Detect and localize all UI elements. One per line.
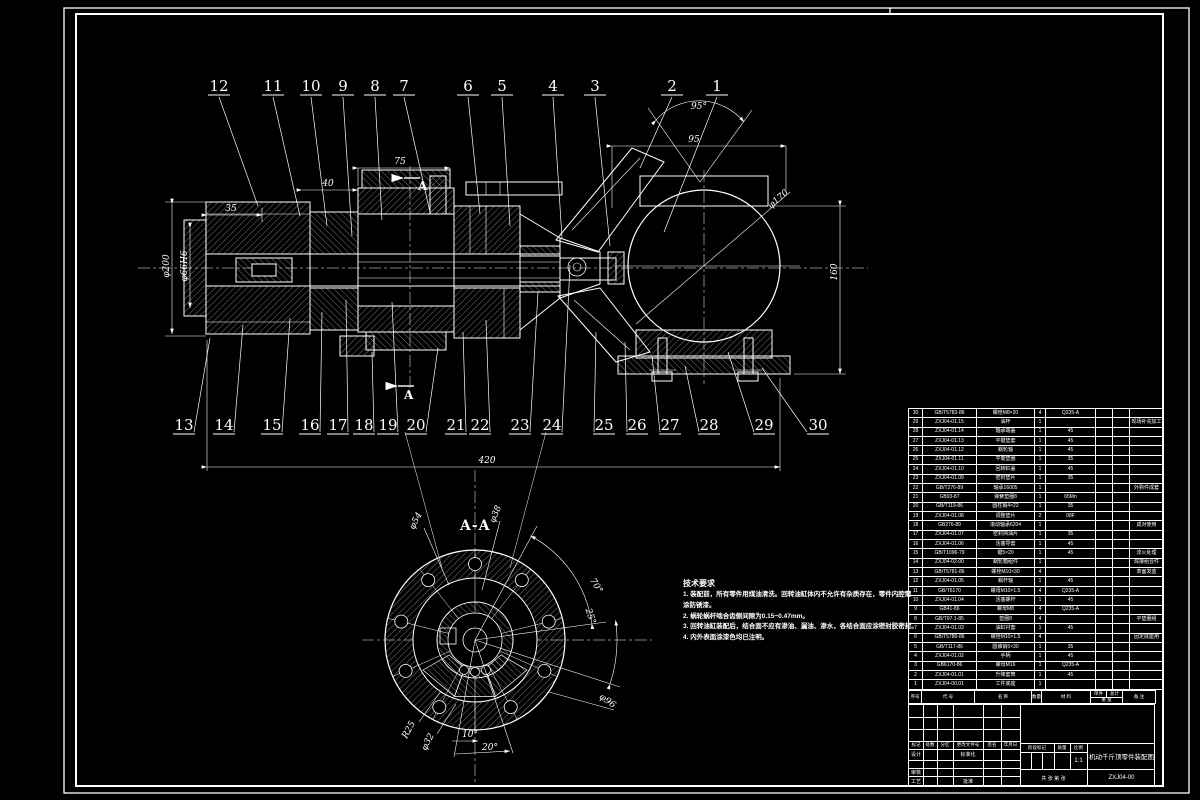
bom-cell: 轴承端盖 xyxy=(977,427,1035,436)
dim-d170: φ170 xyxy=(767,188,791,211)
bom-cell: 35 xyxy=(1046,642,1096,651)
bom-cell: 28 xyxy=(909,427,923,436)
bom-cell: 45 xyxy=(1046,437,1096,446)
bom-cell xyxy=(1130,596,1164,605)
bom-cell xyxy=(1130,577,1164,586)
bom-header: 序号 代 号 名 称 数量 材 料 单件 总计 备 注 重 量 xyxy=(908,690,1155,704)
bom-cell xyxy=(1096,568,1113,577)
notes-line: 4. 内外表面涂漆色均已注明。 xyxy=(683,633,915,644)
dim-70deg: 70° xyxy=(587,577,604,596)
bom-cell: GB/T5783-86 xyxy=(923,409,977,418)
dim-35: 35 xyxy=(225,204,237,214)
bom-cell xyxy=(1096,493,1113,502)
bom-cell: 密封挡油片 xyxy=(977,530,1035,539)
bom-cell xyxy=(1096,661,1113,670)
callout-16: 16 xyxy=(300,416,319,434)
bom-cell: 20 xyxy=(909,502,923,511)
callout-1: 1 xyxy=(712,77,722,95)
bom-cell xyxy=(1130,652,1164,661)
bom-cell xyxy=(1113,530,1130,539)
bom-cell xyxy=(1130,605,1164,614)
bom-cell: 15 xyxy=(909,549,923,558)
bom-cell xyxy=(1130,455,1164,464)
bom-cell: 升降套筒 xyxy=(977,671,1035,680)
title-block: 标记 处数 分区 更改文件号 签名 年月日 设计 标准化 审核 工艺 批准 阶段… xyxy=(908,704,1155,786)
tb-grid-line xyxy=(1020,705,1021,787)
bom-cell: 1 xyxy=(1035,530,1046,539)
bom-cell xyxy=(1096,465,1113,474)
bom-header-name: 名 称 xyxy=(975,691,1032,704)
bom-cell: Q235-A xyxy=(1046,661,1096,670)
bom-cell xyxy=(1096,549,1113,558)
bom-cell: 调整垫片 xyxy=(977,511,1035,520)
bom-cell: 1 xyxy=(1035,596,1046,605)
technical-notes: 技术要求 1. 装配前，所有零件用煤油清洗。回转油缸体内不允许有杂质存在，零件内… xyxy=(683,578,915,644)
bom-cell: ZXJ04-01.13 xyxy=(923,437,977,446)
bom-cell xyxy=(1113,624,1130,633)
bom-cell: 螺栓M10×1.5 xyxy=(977,633,1035,642)
section-title: A-A xyxy=(459,518,491,534)
bom-cell: GB/T5780-86 xyxy=(923,633,977,642)
bom-cell xyxy=(1096,680,1113,690)
bom-cell xyxy=(1046,680,1096,690)
bom-cell xyxy=(1113,474,1130,483)
bom-cell: ZXJ04-01.15 xyxy=(923,418,977,427)
bom-cell: 1 xyxy=(1035,680,1046,690)
tb-grid-line xyxy=(1054,743,1055,769)
bom-cell: 外购件成套 xyxy=(1130,483,1164,492)
bom-cell: 45 xyxy=(1046,671,1096,680)
bom-cell: ZXJ04-01.10 xyxy=(923,465,977,474)
bom-cell: Q235-A xyxy=(1046,409,1096,418)
bom-cell: 18 xyxy=(909,521,923,530)
bom-cell: 密封垫片 xyxy=(977,474,1035,483)
bom-cell: ZXJ04-01.11 xyxy=(923,455,977,464)
tb-approve-label: 批准 xyxy=(953,776,983,787)
bom-cell: 1 xyxy=(1035,493,1046,502)
bom-cell: ZXJ04-01.02 xyxy=(923,652,977,661)
bom-cell xyxy=(1130,427,1164,436)
dim-20deg: 20° xyxy=(481,743,498,753)
bom-cell xyxy=(1096,614,1113,623)
callout-numbers: 1 2 3 4 5 6 7 8 9 10 11 12 13 14 15 16 1… xyxy=(174,77,827,434)
bom-cell: 22 xyxy=(909,483,923,492)
bom-cell xyxy=(1046,614,1096,623)
callout-3: 3 xyxy=(590,77,600,95)
dim-d38: φ38 xyxy=(488,504,504,524)
bom-cell: 键5×20 xyxy=(977,549,1035,558)
bom-cell xyxy=(1130,530,1164,539)
notes-line: 1. 装配前，所有零件用煤油清洗。回转油缸体内不允许有杂质存在，零件内腔需 xyxy=(683,590,915,601)
dim-d32: φ32 xyxy=(420,732,437,753)
bom-cell: 7 xyxy=(909,624,923,633)
bom-cell: ZXJ04-01.07 xyxy=(923,530,977,539)
bom-cell: 弹簧垫圈8 xyxy=(977,493,1035,502)
bom-cell: GB/T1096-79 xyxy=(923,549,977,558)
bom-cell: 螺栓M10×30 xyxy=(977,568,1035,577)
bom-cell xyxy=(1096,530,1113,539)
tb-zone-label: 分区 xyxy=(937,741,953,749)
bom-cell: Q235-A xyxy=(1046,605,1096,614)
bom-cell: 8 xyxy=(909,614,923,623)
bom-cell: 30 xyxy=(909,409,923,418)
bom-cell xyxy=(1130,540,1164,549)
callout-18: 18 xyxy=(354,416,373,434)
bom-cell xyxy=(1096,624,1113,633)
bom-cell xyxy=(1096,446,1113,455)
bom-cell: 45 xyxy=(1046,577,1096,586)
bom-cell: 平衡垫圈 xyxy=(977,455,1035,464)
bom-cell: 27 xyxy=(909,437,923,446)
bom-cell: 1 xyxy=(1035,540,1046,549)
callout-21: 21 xyxy=(446,416,465,434)
bom-cell xyxy=(1130,661,1164,670)
bom-cell xyxy=(1113,568,1130,577)
callout-23: 23 xyxy=(510,416,529,434)
bom-cell xyxy=(1113,437,1130,446)
bom-cell: ZXJ04-02-00 xyxy=(923,558,977,567)
bom-cell: 35 xyxy=(1046,474,1096,483)
bom-cell: 4 xyxy=(1035,614,1046,623)
bom-cell: 08F xyxy=(1046,511,1096,520)
bom-cell xyxy=(1130,502,1164,511)
bom-cell xyxy=(1113,558,1130,567)
bom-cell: 45 xyxy=(1046,540,1096,549)
tb-grid-line xyxy=(1020,752,1087,753)
bom-cell: 表面发蓝 xyxy=(1130,568,1164,577)
callout-5: 5 xyxy=(497,77,507,95)
bom-cell xyxy=(1046,568,1096,577)
callout-10: 10 xyxy=(301,77,320,95)
tb-mark-label: 标记 xyxy=(909,741,923,749)
dim-40: 40 xyxy=(321,179,334,189)
dim-d200: φ200 xyxy=(162,254,172,278)
bom-cell: 活塞导套 xyxy=(977,540,1035,549)
bom-cell xyxy=(1130,409,1164,418)
bom-cell: 蜗轮轴 xyxy=(977,446,1035,455)
bom-cell: ZXJ04-00.01 xyxy=(923,680,977,690)
bom-cell xyxy=(1113,671,1130,680)
tb-scale-label: 比例 xyxy=(1070,743,1087,752)
bom-cell: 轴承16005 xyxy=(977,483,1035,492)
tb-change-label: 更改文件号 xyxy=(953,741,983,749)
callout-27: 27 xyxy=(660,416,679,434)
bom-cell: 21 xyxy=(909,493,923,502)
bom-cell xyxy=(1113,652,1130,661)
bom-cell xyxy=(1096,427,1113,436)
bom-cell xyxy=(1096,502,1113,511)
bom-cell xyxy=(1096,671,1113,680)
bom-cell: 9 xyxy=(909,605,923,614)
bom-cell: 手柄 xyxy=(977,652,1035,661)
callout-8: 8 xyxy=(370,77,380,95)
bom-cell: GB/T5781-86 xyxy=(923,568,977,577)
bom-cell: ZXJ04-01.12 xyxy=(923,446,977,455)
bom-cell: 焊接组合件 xyxy=(1130,558,1164,567)
bom-cell xyxy=(1130,474,1164,483)
bom-cell xyxy=(1113,661,1130,670)
tb-grid-line xyxy=(909,717,1020,718)
bom-cell: 13 xyxy=(909,568,923,577)
tb-grid-line xyxy=(909,741,1020,742)
bom-cell: 2 xyxy=(909,671,923,680)
bom-cell xyxy=(1096,596,1113,605)
tb-stage-label: 阶段标记 xyxy=(1020,743,1054,752)
bom-cell: 1 xyxy=(1035,642,1046,651)
bom-cell: GB93-87 xyxy=(923,493,977,502)
bom-cell: 25 xyxy=(909,455,923,464)
bom-cell: 1 xyxy=(1035,474,1046,483)
bom-cell: 活塞螺杆 xyxy=(977,596,1035,605)
callout-25: 25 xyxy=(594,416,613,434)
callout-13: 13 xyxy=(174,416,193,434)
tb-grid-line xyxy=(909,776,1020,777)
bom-cell: GB6170-86 xyxy=(923,661,977,670)
tb-standard-label: 标准化 xyxy=(953,749,983,760)
bom-cell: 2 xyxy=(1035,511,1046,520)
tb-grid-line xyxy=(1042,752,1043,769)
bom-cell: 固定底座用 xyxy=(1130,633,1164,642)
tb-grid-line xyxy=(1020,743,1154,744)
bom-cell xyxy=(1130,624,1164,633)
bom-cell: Q235-A xyxy=(1046,586,1096,595)
bom-cell: 45 xyxy=(1046,652,1096,661)
bom-cell xyxy=(1113,633,1130,642)
bom-header-material: 材 料 xyxy=(1042,691,1091,704)
bom-cell: 14 xyxy=(909,558,923,567)
drawing-sheet: A A 420 φ200 φ66H6 35 40 75 95 95° 160 φ… xyxy=(0,0,1200,800)
bom-cell xyxy=(1096,577,1113,586)
bom-cell: 45 xyxy=(1046,624,1096,633)
cut-label-a-top: A xyxy=(417,179,428,193)
bom-cell: GB/T117-86 xyxy=(923,642,977,651)
tb-drawing-number: ZXJ04-00 xyxy=(1087,769,1156,787)
bom-cell: 10 xyxy=(909,596,923,605)
bom-cell: 4 xyxy=(1035,605,1046,614)
bom-cell: 45 xyxy=(1046,549,1096,558)
bom-cell xyxy=(1130,465,1164,474)
bom-cell xyxy=(1096,540,1113,549)
dim-d66: φ66H6 xyxy=(180,250,190,282)
bom-header-qty: 数量 xyxy=(1032,691,1042,704)
bom-cell: 平键垫套 xyxy=(977,437,1035,446)
bom-cell xyxy=(1130,680,1164,690)
bom-cell xyxy=(1096,652,1113,661)
bom-cell: 1 xyxy=(1035,502,1046,511)
bom-cell xyxy=(1113,493,1130,502)
bom-cell xyxy=(1130,493,1164,502)
dim-420: 420 xyxy=(477,456,495,466)
bom-cell: 淬火处理 xyxy=(1130,549,1164,558)
tb-date-label: 年月日 xyxy=(1001,741,1020,749)
bom-cell xyxy=(1113,521,1130,530)
bom-cell: ZXJ04-01.03 xyxy=(923,624,977,633)
bom-cell xyxy=(1130,511,1164,520)
bom-cell: 12 xyxy=(909,577,923,586)
bom-cell xyxy=(1096,633,1113,642)
bom-cell xyxy=(1046,483,1096,492)
bom-cell xyxy=(1113,502,1130,511)
bom-cell xyxy=(1113,549,1130,558)
callout-30: 30 xyxy=(808,416,827,434)
bom-cell xyxy=(1046,521,1096,530)
callout-4: 4 xyxy=(548,77,558,95)
bom-cell xyxy=(1113,511,1130,520)
callout-29: 29 xyxy=(754,416,773,434)
bom-cell xyxy=(1096,474,1113,483)
bom-cell: 圆锥销5×30 xyxy=(977,642,1035,651)
callout-17: 17 xyxy=(328,416,347,434)
bom-cell: 1 xyxy=(1035,455,1046,464)
callout-7: 7 xyxy=(399,77,409,95)
bom-cell xyxy=(1046,418,1096,427)
tb-process-label: 工艺 xyxy=(909,776,923,787)
bom-cell: GB276-89 xyxy=(923,521,977,530)
bom-cell: 螺栓M8×20 xyxy=(977,409,1035,418)
bom-cell xyxy=(1113,596,1130,605)
tb-check-label: 审核 xyxy=(909,768,923,776)
cut-label-a-bottom: A xyxy=(403,388,414,402)
tb-grid-line xyxy=(1087,743,1088,787)
bom-cell: GB/T6170 xyxy=(923,586,977,595)
bom-cell: 11 xyxy=(909,586,923,595)
bom-cell: 17 xyxy=(909,530,923,539)
bom-cell xyxy=(1096,437,1113,446)
bom-cell: 蜗杆轴 xyxy=(977,577,1035,586)
dim-r25: R25 xyxy=(400,719,418,741)
bom-cell xyxy=(1096,511,1113,520)
bom-cell xyxy=(1130,586,1164,595)
bom-cell: 工件底座 xyxy=(977,680,1035,690)
bom-cell: 5 xyxy=(909,642,923,651)
dim-95deg: 95° xyxy=(691,102,707,112)
callout-9: 9 xyxy=(338,77,348,95)
callout-11: 11 xyxy=(263,77,282,95)
bom-cell: 螺母M16 xyxy=(977,661,1035,670)
bom-cell: 垫圈8 xyxy=(977,614,1035,623)
bom-parts-list: 30GB/T5783-86螺栓M8×204Q235-A29ZXJ04-01.15… xyxy=(908,408,1155,690)
tb-design-label: 设计 xyxy=(909,749,923,760)
tb-grid-line xyxy=(909,760,1020,761)
bom-cell xyxy=(1096,409,1113,418)
bom-cell: 1 xyxy=(1035,652,1046,661)
tb-grid-line xyxy=(909,729,1020,730)
callout-20: 20 xyxy=(406,416,425,434)
bom-cell xyxy=(1096,605,1113,614)
bom-cell xyxy=(1113,680,1130,690)
notes-line: 3. 回转油缸装配后，结合面不应有渗油、漏油、渗水，各结合面应涂密封胶密封。 xyxy=(683,622,915,633)
bom-cell: 螺母M10×1.5 xyxy=(977,586,1035,595)
bom-cell xyxy=(1113,586,1130,595)
bom-cell xyxy=(1096,455,1113,464)
bom-cell: 4 xyxy=(1035,586,1046,595)
bom-cell: GB/T97.1-85 xyxy=(923,614,977,623)
callout-12: 12 xyxy=(209,77,228,95)
bom-header-remark: 备 注 xyxy=(1123,691,1156,704)
bom-cell: 回转缸盖 xyxy=(977,465,1035,474)
bom-cell xyxy=(1096,586,1113,595)
bom-cell: 1 xyxy=(1035,437,1046,446)
callout-19: 19 xyxy=(378,416,397,434)
bom-cell: 6 xyxy=(909,633,923,642)
bom-cell xyxy=(1130,671,1164,680)
bom-cell: 1 xyxy=(909,680,923,690)
bom-cell xyxy=(1096,521,1113,530)
bom-cell: 油杯 xyxy=(977,418,1035,427)
bom-cell xyxy=(1046,558,1096,567)
dim-160: 160 xyxy=(830,263,840,280)
bom-cell xyxy=(1113,409,1130,418)
bom-cell: 45 xyxy=(1046,596,1096,605)
bom-cell xyxy=(1096,558,1113,567)
bom-cell: ZXJ04-01.08 xyxy=(923,511,977,520)
bom-header-code: 代 号 xyxy=(922,691,975,704)
bom-cell: 26 xyxy=(909,446,923,455)
bom-cell xyxy=(1096,642,1113,651)
bom-cell: 1 xyxy=(1035,624,1046,633)
bom-cell xyxy=(1096,418,1113,427)
tb-scale-value: 1:1 xyxy=(1070,752,1087,769)
bom-cell xyxy=(1130,446,1164,455)
bom-cell xyxy=(1113,483,1130,492)
callout-24: 24 xyxy=(542,416,561,434)
bom-cell: ZXJ04-01.06 xyxy=(923,540,977,549)
bom-cell xyxy=(1113,605,1130,614)
bom-cell: 1 xyxy=(1035,418,1046,427)
bom-cell: GB/T276-89 xyxy=(923,483,977,492)
tb-drawing-title: 机动千斤顶零件装配图 xyxy=(1087,743,1156,769)
tb-sheet-count: 共 张 第 张 xyxy=(1020,769,1087,787)
bom-cell xyxy=(1130,642,1164,651)
bom-cell: 16 xyxy=(909,540,923,549)
bom-cell: 35 xyxy=(1046,455,1096,464)
bom-cell: 4 xyxy=(1035,568,1046,577)
bom-cell: 35 xyxy=(1046,502,1096,511)
dim-95: 95 xyxy=(688,135,700,145)
bom-cell: ZXJ04-01.04 xyxy=(923,596,977,605)
bom-cell: GB41-86 xyxy=(923,605,977,614)
bom-cell: 45 xyxy=(1046,465,1096,474)
bom-cell: 平垫圈组 xyxy=(1130,614,1164,623)
bom-cell: ZXJ04-01.14 xyxy=(923,427,977,436)
bom-cell: GB/T119-86 xyxy=(923,502,977,511)
callout-2: 2 xyxy=(667,77,677,95)
bom-cell: 1 xyxy=(1035,661,1046,670)
bom-cell xyxy=(1113,427,1130,436)
bom-cell: 19 xyxy=(909,511,923,520)
bom-cell xyxy=(1130,437,1164,446)
bom-cell: 1 xyxy=(1035,549,1046,558)
tb-grid-line xyxy=(909,749,1020,750)
bom-cell: 螺母M8 xyxy=(977,605,1035,614)
bom-cell: 24 xyxy=(909,465,923,474)
callout-6: 6 xyxy=(463,77,473,95)
dim-d54: φ54 xyxy=(408,511,425,532)
bom-cell xyxy=(1113,446,1130,455)
bom-cell xyxy=(1046,633,1096,642)
bom-cell: 成对使用 xyxy=(1130,521,1164,530)
bom-cell: 3 xyxy=(909,661,923,670)
bom-cell: 1 xyxy=(1035,483,1046,492)
bom-cell: ZXJ04-01.05 xyxy=(923,577,977,586)
callout-22: 22 xyxy=(470,416,489,434)
bom-cell: 4 xyxy=(1035,633,1046,642)
bom-cell: 29 xyxy=(909,418,923,427)
bom-cell xyxy=(1113,455,1130,464)
notes-line: 涂防锈漆。 xyxy=(683,601,915,612)
bom-cell: 1 xyxy=(1035,427,1046,436)
dim-10deg: 10° xyxy=(462,730,478,740)
